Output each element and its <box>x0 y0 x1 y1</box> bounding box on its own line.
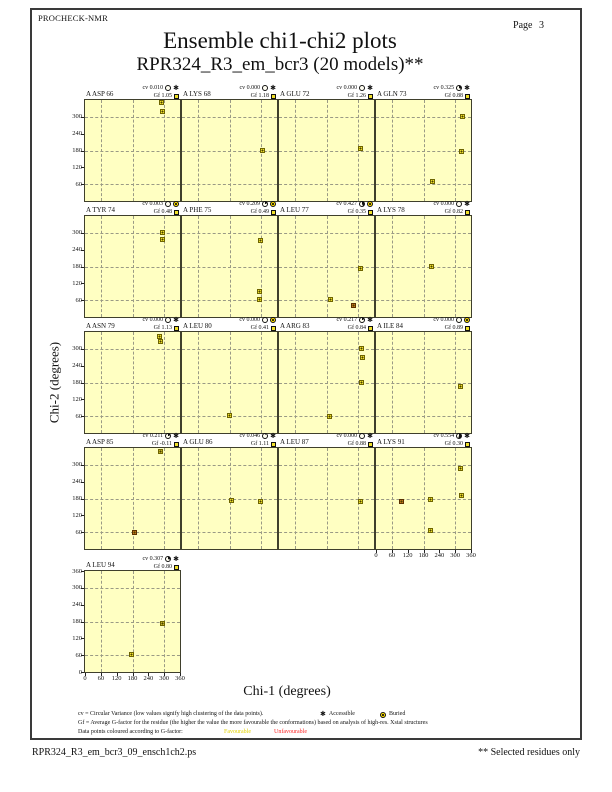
cv-pie-icon <box>456 201 462 207</box>
data-point <box>257 289 262 294</box>
cv-pie-icon <box>359 85 365 91</box>
gf-row: Gf 0.89 <box>433 324 470 332</box>
gf-row: Gf 0.88 <box>433 92 470 100</box>
cv-pie-icon <box>262 317 268 323</box>
subplot-a-phe-75: A PHE 75cv 0.209Gf 0.49 <box>181 215 278 318</box>
y-tick-label: 60 <box>68 652 82 659</box>
subplot-a-leu-80: A LEU 80cv 0.000Gf 0.41 <box>181 331 278 434</box>
cv-gf-block: cv 0.000✱Gf 1.26 <box>336 84 373 100</box>
x-tick <box>133 673 134 676</box>
cv-gf-block: cv 0.010✱Gf 1.05 <box>142 84 179 100</box>
gridline-horizontal <box>85 383 180 384</box>
y-tick <box>81 605 84 606</box>
residue-label: A LYS 91 <box>377 438 405 446</box>
x-tick <box>424 550 425 553</box>
cv-row: cv 0.000✱ <box>433 200 470 208</box>
residue-label: A GLU 86 <box>183 438 213 446</box>
x-tick-label: 180 <box>125 675 141 682</box>
y-tick <box>81 151 84 152</box>
data-point <box>158 449 163 454</box>
residue-label: A GLN 73 <box>377 90 407 98</box>
x-tick <box>408 550 409 553</box>
residue-label: A GLU 72 <box>280 90 310 98</box>
gf-value: Gf 0.88 <box>348 440 366 448</box>
y-tick <box>81 366 84 367</box>
gridline-horizontal <box>182 383 277 384</box>
y-tick-label: 60 <box>68 413 82 420</box>
gridline-horizontal <box>182 117 277 118</box>
x-tick <box>439 550 440 553</box>
cv-gf-block: cv 0.003Gf 0.48 <box>142 200 179 216</box>
gf-value: Gf 0.41 <box>251 324 269 332</box>
accessible-icon: ✱ <box>464 433 470 440</box>
y-tick-label: 240 <box>68 601 82 608</box>
gf-row: Gf -0.11 <box>143 440 179 448</box>
gridline-horizontal <box>85 233 180 234</box>
gf-square-icon <box>368 210 373 215</box>
x-tick <box>392 550 393 553</box>
accessible-icon: ✱ <box>173 433 179 440</box>
y-tick-label: 180 <box>68 495 82 502</box>
residue-label: A LEU 80 <box>183 322 212 330</box>
gf-square-icon <box>465 94 470 99</box>
y-tick <box>81 300 84 301</box>
gridline-vertical <box>164 100 165 201</box>
y-tick-label: 120 <box>68 512 82 519</box>
cv-row: cv 0.211✱ <box>143 432 179 440</box>
y-tick-label: 120 <box>68 164 82 171</box>
cv-row: cv 0.000✱ <box>336 84 373 92</box>
data-point <box>160 109 165 114</box>
x-tick <box>180 673 181 676</box>
x-tick <box>455 550 456 553</box>
gridline-horizontal <box>85 151 180 152</box>
accessible-icon: ✱ <box>367 85 373 92</box>
y-tick <box>81 622 84 623</box>
cv-gf-block: cv 0.211✱Gf -0.11 <box>143 432 179 448</box>
buried-icon <box>270 317 276 323</box>
gf-value: Gf 1.05 <box>154 92 172 100</box>
gf-square-icon <box>271 442 276 447</box>
cv-gf-block: cv 0.307✱Gf 0.80 <box>142 555 179 571</box>
gf-value: Gf 0.88 <box>445 92 463 100</box>
residue-label: A ASN 79 <box>86 322 115 330</box>
x-tick-label: 0 <box>77 675 93 682</box>
cv-row: cv 0.046✱ <box>239 432 276 440</box>
gf-row: Gf 0.88 <box>336 440 373 448</box>
gf-square-icon <box>174 326 179 331</box>
y-tick-label: 300 <box>68 345 82 352</box>
gridline-horizontal <box>279 465 374 466</box>
y-tick <box>81 267 84 268</box>
cv-value: cv 0.010 <box>142 84 163 92</box>
subplot-a-leu-94: A LEU 94cv 0.307✱Gf 0.800601201802403003… <box>84 570 181 673</box>
x-tick <box>376 550 377 553</box>
y-tick <box>81 349 84 350</box>
cv-value: cv 0.046 <box>239 432 260 440</box>
gf-value: Gf 0.84 <box>348 324 366 332</box>
y-tick <box>81 233 84 234</box>
subplot-a-arg-83: A ARG 83cv 0.217✱Gf 0.84 <box>278 331 375 434</box>
gridline-horizontal <box>85 349 180 350</box>
subplot-a-tyr-74: A TYR 74cv 0.003Gf 0.4860120180240300 <box>84 215 181 318</box>
gf-row: Gf 0.41 <box>239 324 276 332</box>
subplot-a-glu-72: A GLU 72cv 0.000✱Gf 1.26 <box>278 99 375 202</box>
gf-value: Gf -0.11 <box>152 440 172 448</box>
residue-label: A LYS 68 <box>183 90 211 98</box>
accessible-icon: ✱ <box>270 433 276 440</box>
y-tick-label: 180 <box>68 263 82 270</box>
accessible-icon: ✱ <box>464 85 470 92</box>
y-tick-label: 120 <box>68 280 82 287</box>
y-tick-label: 240 <box>68 362 82 369</box>
cv-gf-block: cv 0.000✱Gf 0.88 <box>336 432 373 448</box>
y-tick <box>81 482 84 483</box>
data-point <box>229 498 234 503</box>
subplot-a-asn-79: A ASN 79cv 0.000✱Gf 1.1360120180240300 <box>84 331 181 434</box>
cv-pie-icon <box>359 317 365 323</box>
residue-label: A ARG 83 <box>280 322 310 330</box>
x-tick-label: 240 <box>140 675 156 682</box>
x-tick <box>164 673 165 676</box>
x-tick-label: 60 <box>93 675 109 682</box>
accessible-icon: ✱ <box>173 556 179 563</box>
y-tick-label: 300 <box>68 461 82 468</box>
gf-square-icon <box>174 210 179 215</box>
data-point <box>360 355 365 360</box>
y-tick <box>81 532 84 533</box>
accessible-icon: ✱ <box>320 711 326 718</box>
y-tick <box>81 250 84 251</box>
data-point <box>227 413 232 418</box>
cv-value: cv 0.211 <box>143 432 163 440</box>
gridline-horizontal <box>376 117 471 118</box>
gf-square-icon <box>174 442 179 447</box>
y-tick <box>81 588 84 589</box>
x-tick-label: 120 <box>109 675 125 682</box>
data-point <box>132 530 137 535</box>
gf-value: Gf 0.35 <box>348 208 366 216</box>
residue-label: A ASP 85 <box>86 438 113 446</box>
data-point <box>129 652 134 657</box>
gf-square-icon <box>465 442 470 447</box>
cv-value: cv 0.000 <box>142 316 163 324</box>
y-tick-label: 120 <box>68 635 82 642</box>
gridline-horizontal <box>279 233 374 234</box>
gridline-horizontal <box>182 465 277 466</box>
cv-gf-block: cv 0.325✱Gf 0.88 <box>433 84 470 100</box>
cv-value: cv 0.000 <box>239 84 260 92</box>
accessible-icon: ✱ <box>367 317 373 324</box>
gridline-vertical <box>261 216 262 317</box>
cv-gf-block: cv 0.000✱Gf 1.13 <box>142 316 179 332</box>
gf-row: Gf 0.35 <box>336 208 373 216</box>
cv-row: cv 0.000✱ <box>239 84 276 92</box>
legend-colour-text: Data points coloured according to G-fact… <box>78 729 183 735</box>
y-tick-label: 120 <box>68 396 82 403</box>
cv-pie-icon <box>165 317 171 323</box>
y-tick <box>81 499 84 500</box>
cv-gf-block: cv 0.217✱Gf 0.84 <box>336 316 373 332</box>
cv-value: cv 0.000 <box>336 432 357 440</box>
accessible-icon: ✱ <box>367 433 373 440</box>
gf-square-icon <box>368 442 373 447</box>
gridline-horizontal <box>279 117 374 118</box>
subplot-a-glu-86: A GLU 86cv 0.046✱Gf 1.11 <box>181 447 278 550</box>
y-tick <box>81 571 84 572</box>
cv-gf-block: cv 0.000Gf 0.89 <box>433 316 470 332</box>
gf-square-icon <box>271 94 276 99</box>
gridline-horizontal <box>376 383 471 384</box>
gf-square-icon <box>271 210 276 215</box>
cv-row: cv 0.325✱ <box>433 84 470 92</box>
cv-value: cv 0.000 <box>336 84 357 92</box>
x-tick <box>101 673 102 676</box>
cv-pie-icon <box>262 85 268 91</box>
y-tick <box>81 167 84 168</box>
accessible-label: Accessible <box>329 710 355 719</box>
gf-value: Gf 0.48 <box>154 208 172 216</box>
page-border: PROCHECK-NMR Page 3 Ensemble chi1-chi2 p… <box>30 8 582 740</box>
gf-value: Gf 0.82 <box>445 208 463 216</box>
x-tick-label: 300 <box>447 552 463 559</box>
gf-value: Gf 1.26 <box>348 92 366 100</box>
ps-filename: RPR324_R3_em_bcr3_09_ensch1ch2.ps <box>32 747 196 758</box>
y-tick <box>81 184 84 185</box>
unfavourable-label: Unfavourable <box>274 728 307 737</box>
subplot-a-leu-87: A LEU 87cv 0.000✱Gf 0.88 <box>278 447 375 550</box>
gf-row: Gf 0.49 <box>239 208 276 216</box>
y-tick <box>81 399 84 400</box>
gridline-horizontal <box>376 465 471 466</box>
gridline-horizontal <box>376 267 471 268</box>
cv-row: cv 0.209 <box>239 200 276 208</box>
page: PROCHECK-NMR Page 3 Ensemble chi1-chi2 p… <box>0 0 612 792</box>
data-point <box>359 380 364 385</box>
cv-value: cv 0.000 <box>239 316 260 324</box>
gf-value: Gf 0.89 <box>445 324 463 332</box>
cv-value: cv 0.000 <box>433 316 454 324</box>
y-tick <box>81 672 84 673</box>
gf-row: Gf 1.13 <box>142 324 179 332</box>
gf-square-icon <box>368 326 373 331</box>
data-point <box>160 237 165 242</box>
subplot-a-asp-66: A ASP 66cv 0.010✱Gf 1.0560120180240300 <box>84 99 181 202</box>
gridline-vertical <box>455 100 456 201</box>
data-point <box>459 493 464 498</box>
data-point <box>160 621 165 626</box>
cv-gf-block: cv 0.427Gf 0.35 <box>336 200 373 216</box>
data-point <box>358 146 363 151</box>
cv-pie-icon <box>456 317 462 323</box>
data-point <box>358 266 363 271</box>
x-tick-label: 60 <box>384 552 400 559</box>
data-point <box>160 230 165 235</box>
cv-pie-icon <box>359 433 365 439</box>
cv-row: cv 0.000 <box>433 316 470 324</box>
y-tick-label: 180 <box>68 147 82 154</box>
gridline-vertical <box>455 332 456 433</box>
cv-value: cv 0.427 <box>336 200 357 208</box>
cv-pie-icon <box>262 433 268 439</box>
cv-pie-icon <box>165 85 171 91</box>
gridline-horizontal <box>376 349 471 350</box>
cv-value: cv 0.209 <box>239 200 260 208</box>
x-tick-label: 180 <box>416 552 432 559</box>
cv-gf-block: cv 0.554✱Gf 0.30 <box>433 432 470 448</box>
gridline-vertical <box>164 332 165 433</box>
cv-row: cv 0.003 <box>142 200 179 208</box>
gf-row: Gf 1.26 <box>336 92 373 100</box>
buried-icon <box>464 317 470 323</box>
cv-row: cv 0.010✱ <box>142 84 179 92</box>
buried-icon <box>380 712 386 718</box>
gf-row: Gf 0.30 <box>433 440 470 448</box>
cv-value: cv 0.307 <box>142 555 163 563</box>
residue-label: A LEU 94 <box>86 561 115 569</box>
gridline-horizontal <box>85 117 180 118</box>
cv-row: cv 0.000✱ <box>336 432 373 440</box>
accessible-icon: ✱ <box>270 85 276 92</box>
residue-label: A LEU 77 <box>280 206 309 214</box>
gf-square-icon <box>174 94 179 99</box>
gf-row: Gf 1.18 <box>239 92 276 100</box>
data-point <box>428 528 433 533</box>
gridline-horizontal <box>85 499 180 500</box>
y-tick-label: 60 <box>68 181 82 188</box>
favourable-label: Favourable <box>224 728 251 737</box>
cv-value: cv 0.325 <box>433 84 454 92</box>
buried-icon <box>270 201 276 207</box>
data-point <box>351 303 356 308</box>
cv-value: cv 0.003 <box>142 200 163 208</box>
gf-row: Gf 0.82 <box>433 208 470 216</box>
data-point <box>460 114 465 119</box>
y-tick-label: 300 <box>68 584 82 591</box>
subplot-a-leu-77: A LEU 77cv 0.427Gf 0.35 <box>278 215 375 318</box>
residue-label: A LYS 78 <box>377 206 405 214</box>
gridline-horizontal <box>376 151 471 152</box>
data-point <box>159 100 164 105</box>
subplot-a-lys-91: A LYS 91cv 0.554✱Gf 0.300601201802403003… <box>375 447 472 550</box>
y-tick-label: 360 <box>68 568 82 575</box>
buried-icon <box>173 201 179 207</box>
cv-row: cv 0.217✱ <box>336 316 373 324</box>
cv-pie-icon <box>359 201 365 207</box>
data-point <box>327 414 332 419</box>
selected-residues-note: ** Selected residues only <box>478 747 580 758</box>
gf-value: Gf 0.30 <box>445 440 463 448</box>
residue-label: A LEU 87 <box>280 438 309 446</box>
data-point <box>358 499 363 504</box>
data-point <box>260 148 265 153</box>
x-tick-label: 120 <box>400 552 416 559</box>
residue-label: A TYR 74 <box>86 206 115 214</box>
x-tick-label: 0 <box>368 552 384 559</box>
x-tick-label: 360 <box>463 552 479 559</box>
data-point <box>258 499 263 504</box>
cv-pie-icon <box>456 85 462 91</box>
legend-gf-text: Gf = Average G-factor for the residue (t… <box>78 719 558 728</box>
gridline-horizontal <box>182 349 277 350</box>
cv-gf-block: cv 0.000✱Gf 1.18 <box>239 84 276 100</box>
gridline-vertical <box>261 332 262 433</box>
gf-row: Gf 0.48 <box>142 208 179 216</box>
accessible-icon: ✱ <box>464 201 470 208</box>
cv-row: cv 0.427 <box>336 200 373 208</box>
buried-icon <box>367 201 373 207</box>
data-point <box>430 179 435 184</box>
data-point <box>428 497 433 502</box>
gf-square-icon <box>465 210 470 215</box>
x-tick <box>85 673 86 676</box>
gridline-horizontal <box>182 233 277 234</box>
cv-gf-block: cv 0.209Gf 0.49 <box>239 200 276 216</box>
gf-square-icon <box>174 565 179 570</box>
data-point <box>399 499 404 504</box>
x-tick <box>117 673 118 676</box>
gf-square-icon <box>465 326 470 331</box>
data-point <box>359 346 364 351</box>
y-tick <box>81 416 84 417</box>
plots-grid: A ASP 66cv 0.010✱Gf 1.0560120180240300A … <box>32 10 580 738</box>
accessible-icon: ✱ <box>173 317 179 324</box>
residue-label: A PHE 75 <box>183 206 211 214</box>
y-tick <box>81 134 84 135</box>
gf-value: Gf 0.49 <box>251 208 269 216</box>
gridline-horizontal <box>85 465 180 466</box>
gf-row: Gf 0.84 <box>336 324 373 332</box>
gf-value: Gf 1.13 <box>154 324 172 332</box>
gridline-horizontal <box>85 267 180 268</box>
y-tick-label: 240 <box>68 478 82 485</box>
gf-square-icon <box>271 326 276 331</box>
accessible-icon: ✱ <box>173 85 179 92</box>
residue-label: A ASP 66 <box>86 90 113 98</box>
y-tick <box>81 655 84 656</box>
legend: cv = Circular Variance (low values signi… <box>78 710 558 737</box>
data-point <box>458 384 463 389</box>
cv-row: cv 0.554✱ <box>433 432 470 440</box>
cv-row: cv 0.000✱ <box>142 316 179 324</box>
data-point <box>158 339 163 344</box>
gf-row: Gf 1.05 <box>142 92 179 100</box>
data-point <box>328 297 333 302</box>
data-point <box>429 264 434 269</box>
gridline-horizontal <box>85 588 180 589</box>
gf-row: Gf 1.11 <box>239 440 276 448</box>
gridline-horizontal <box>376 233 471 234</box>
cv-value: cv 0.554 <box>433 432 454 440</box>
y-tick <box>81 283 84 284</box>
x-tick <box>471 550 472 553</box>
data-point <box>459 149 464 154</box>
gf-value: Gf 1.11 <box>251 440 269 448</box>
subplot-a-lys-68: A LYS 68cv 0.000✱Gf 1.18 <box>181 99 278 202</box>
gf-value: Gf 0.80 <box>154 563 172 571</box>
gridline-vertical <box>455 448 456 549</box>
y-tick-label: 60 <box>68 529 82 536</box>
cv-gf-block: cv 0.000Gf 0.41 <box>239 316 276 332</box>
subplot-a-asp-85: A ASP 85cv 0.211✱Gf -0.1160120180240300 <box>84 447 181 550</box>
gridline-horizontal <box>376 499 471 500</box>
gridline-vertical <box>455 216 456 317</box>
gridline-horizontal <box>182 267 277 268</box>
cv-gf-block: cv 0.000✱Gf 0.82 <box>433 200 470 216</box>
gridline-horizontal <box>85 622 180 623</box>
y-tick-label: 300 <box>68 229 82 236</box>
data-point <box>257 297 262 302</box>
